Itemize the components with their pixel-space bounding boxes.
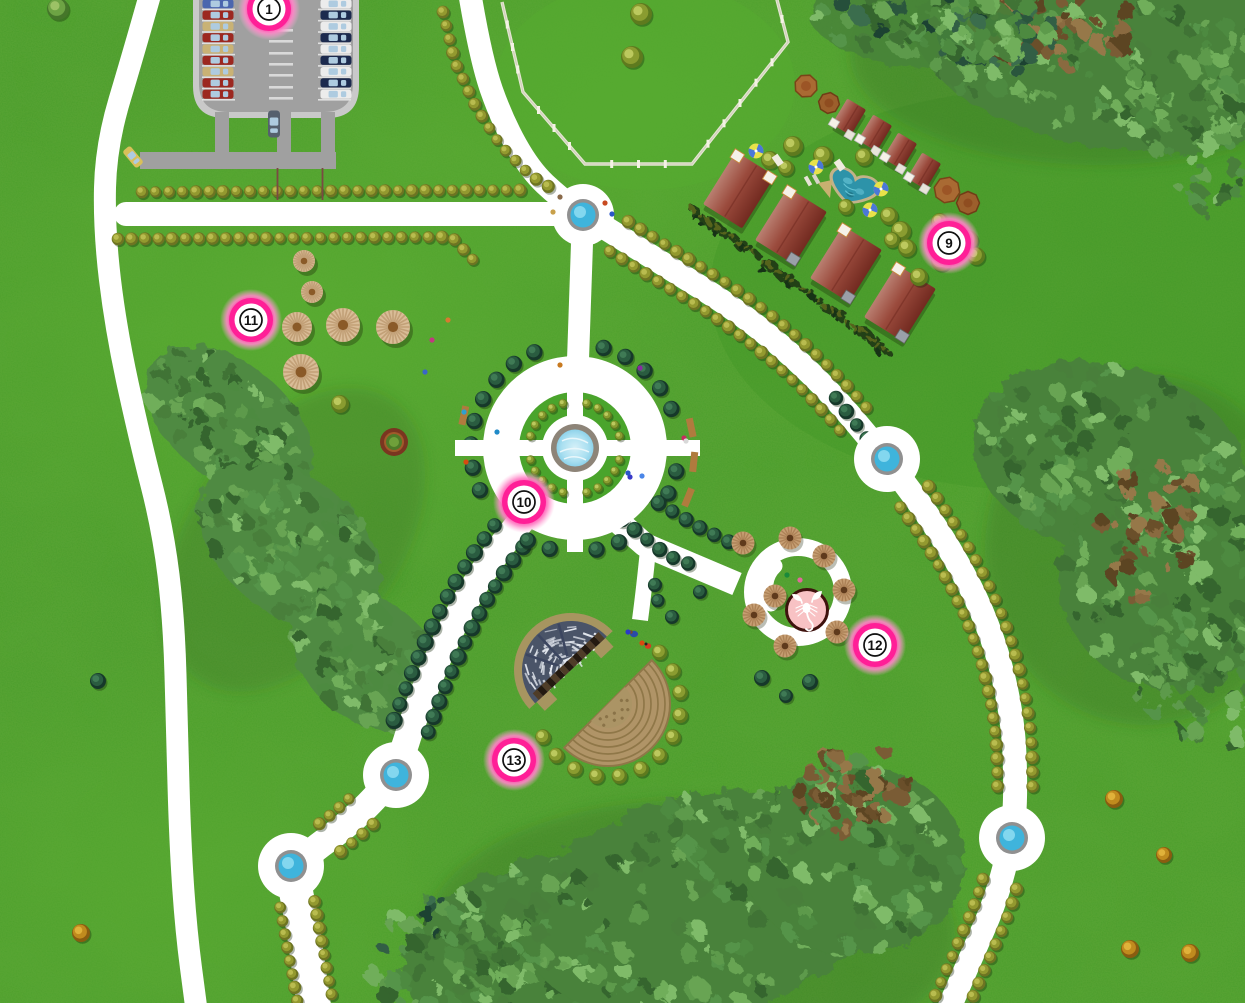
svg-text:10: 10 — [516, 495, 531, 510]
svg-text:12: 12 — [867, 638, 882, 653]
svg-text:1: 1 — [265, 2, 273, 17]
svg-text:13: 13 — [506, 753, 522, 768]
svg-text:11: 11 — [244, 313, 259, 328]
svg-text:9: 9 — [945, 236, 953, 251]
